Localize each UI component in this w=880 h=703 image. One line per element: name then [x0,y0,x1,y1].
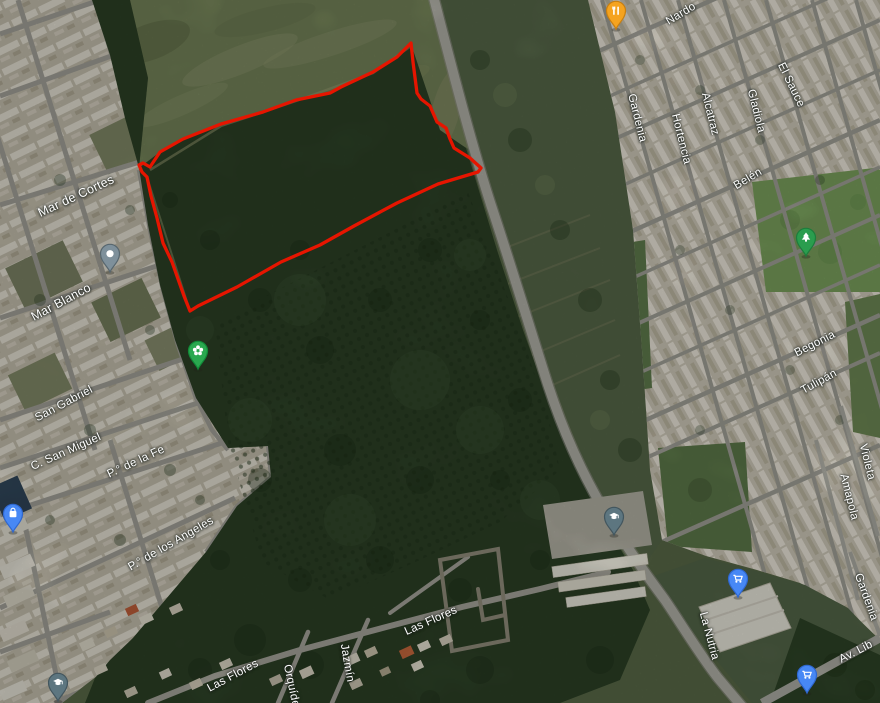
satellite-map[interactable]: Mar de Cortes Mar Blanco San Gabriel C. … [0,0,880,703]
dot-icon [106,250,113,257]
